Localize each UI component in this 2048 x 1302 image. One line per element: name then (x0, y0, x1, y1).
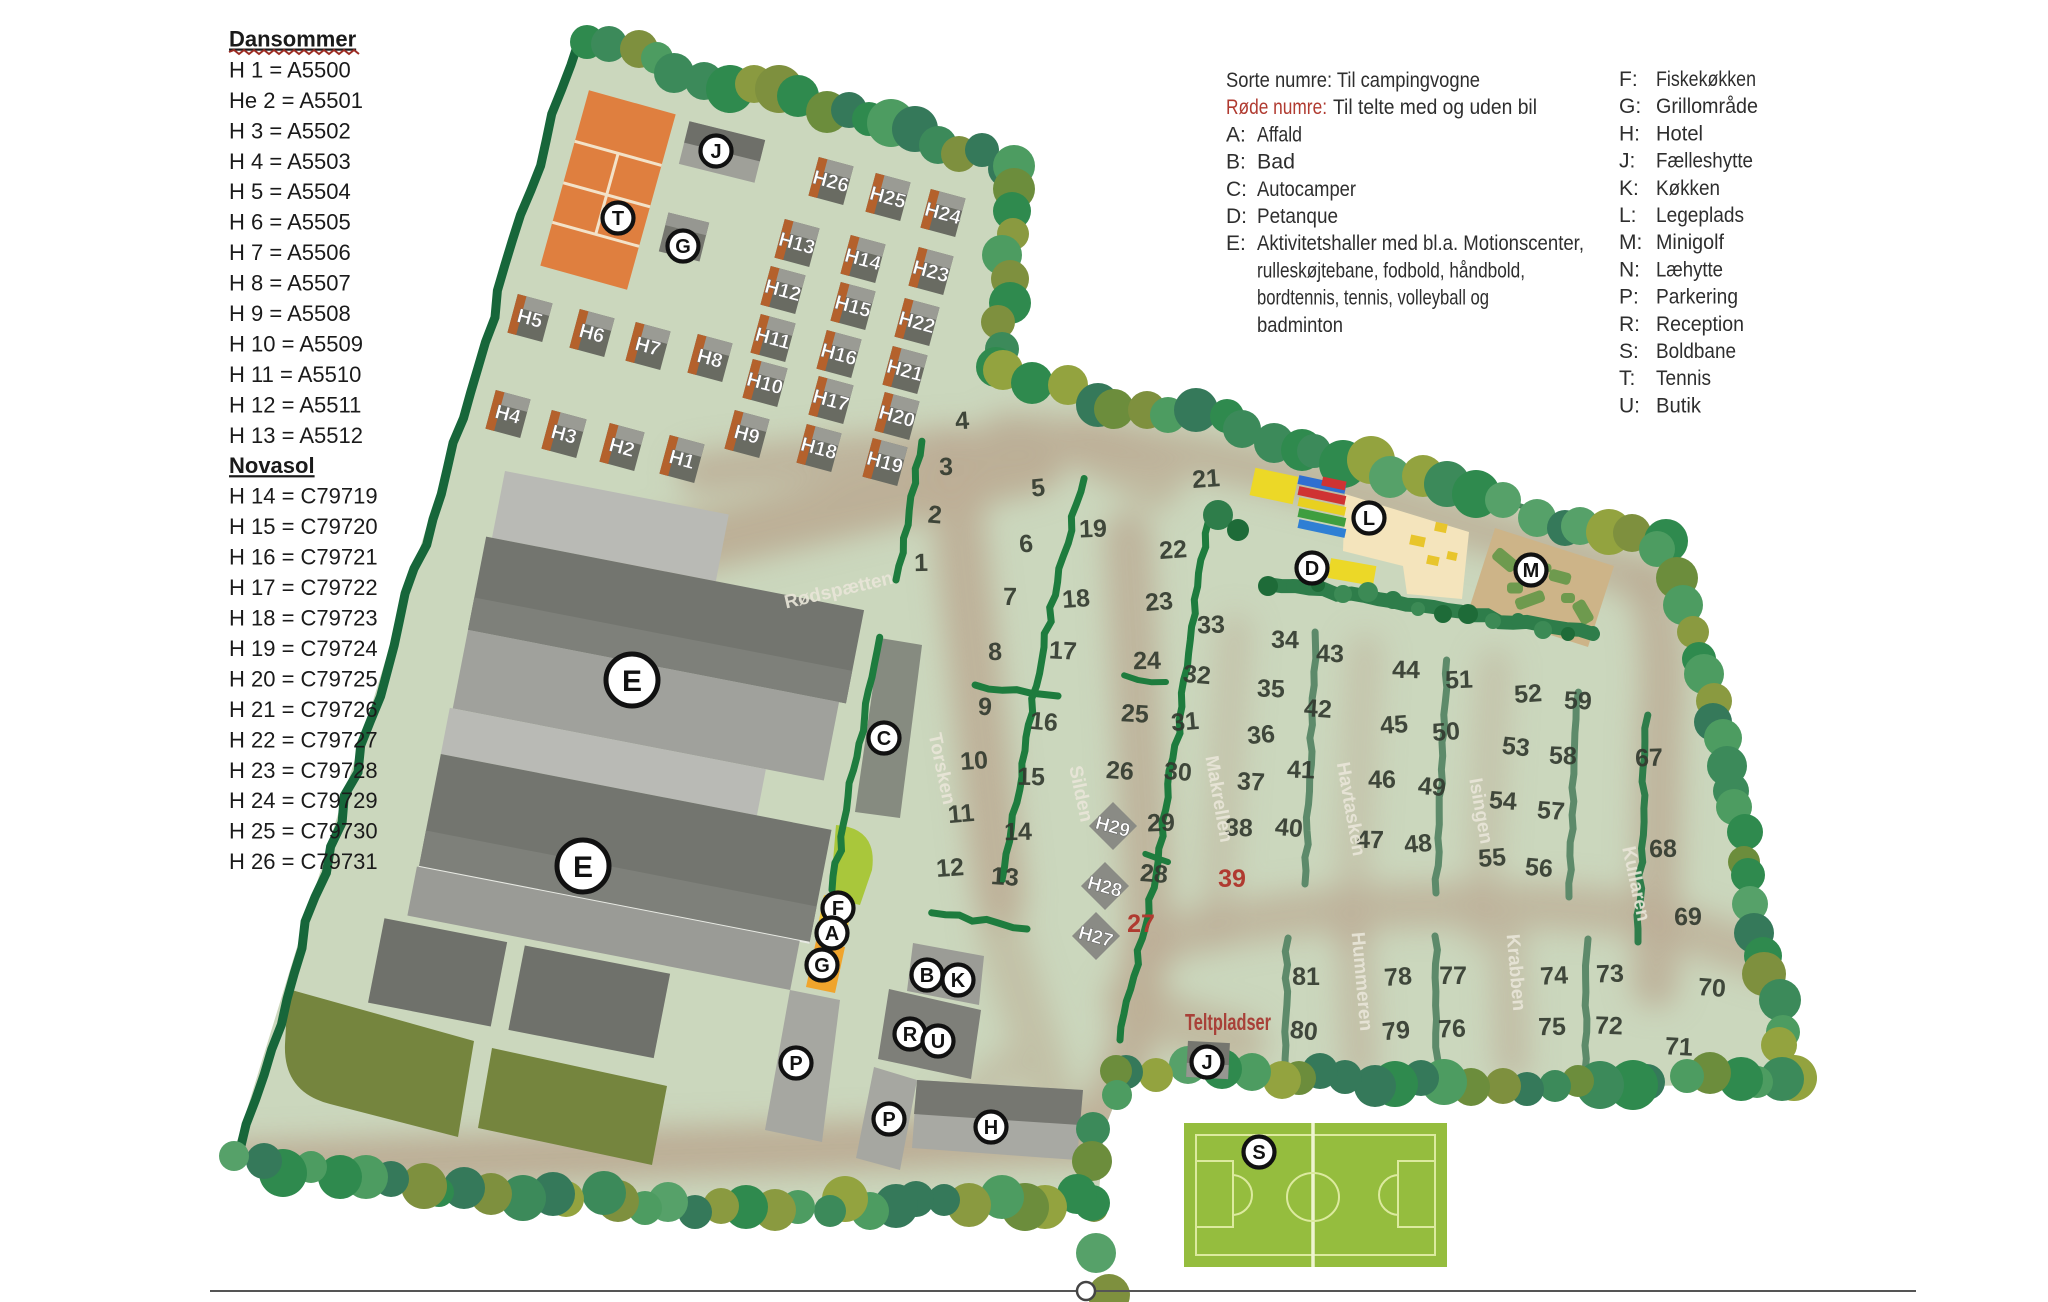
svg-text:P:: P: (1619, 286, 1639, 309)
svg-text:10: 10 (959, 746, 989, 776)
svg-text:H 17 = C79722: H 17 = C79722 (229, 575, 378, 600)
svg-text:R:: R: (1619, 313, 1640, 336)
svg-text:Legeplads: Legeplads (1656, 204, 1744, 227)
svg-text:G: G (814, 955, 830, 977)
svg-text:9: 9 (977, 693, 992, 722)
svg-text:B: B (920, 965, 934, 987)
svg-text:Minigolf: Minigolf (1656, 231, 1724, 254)
svg-text:D:: D: (1226, 205, 1247, 228)
svg-text:6: 6 (1018, 529, 1034, 558)
svg-text:F:: F: (1619, 68, 1638, 91)
svg-text:H 12 = A5511: H 12 = A5511 (229, 392, 361, 417)
svg-text:R: R (903, 1024, 918, 1046)
svg-text:71: 71 (1664, 1032, 1693, 1061)
svg-text:22: 22 (1158, 535, 1188, 565)
svg-text:Teltpladser: Teltpladser (1185, 1009, 1271, 1035)
svg-text:55: 55 (1477, 843, 1507, 873)
svg-text:5: 5 (1030, 473, 1046, 502)
svg-text:M:: M: (1619, 231, 1642, 254)
svg-text:H 13 = A5512: H 13 = A5512 (229, 423, 363, 448)
svg-text:H 23 = C79728: H 23 = C79728 (229, 758, 378, 783)
svg-text:31: 31 (1170, 707, 1200, 737)
svg-text:T: T (612, 208, 624, 230)
svg-text:Fiskekøkken: Fiskekøkken (1656, 68, 1756, 91)
svg-text:56: 56 (1524, 853, 1554, 883)
svg-text:T:: T: (1619, 367, 1635, 390)
svg-text:L: L (1363, 508, 1375, 530)
svg-text:Grillområde: Grillområde (1656, 95, 1758, 118)
svg-text:35: 35 (1257, 675, 1286, 704)
svg-text:24: 24 (1133, 647, 1161, 675)
svg-text:13: 13 (990, 862, 1020, 892)
svg-text:J: J (1201, 1052, 1212, 1074)
svg-text:H 1 = A5500: H 1 = A5500 (229, 57, 351, 82)
svg-text:36: 36 (1246, 720, 1276, 750)
svg-text:76: 76 (1438, 1015, 1467, 1044)
svg-text:P: P (789, 1053, 802, 1075)
svg-text:27: 27 (1127, 910, 1155, 938)
svg-text:H 15 = C79720: H 15 = C79720 (229, 514, 378, 539)
svg-text:Tennis: Tennis (1656, 367, 1711, 390)
svg-text:Køkken: Køkken (1656, 177, 1720, 200)
svg-text:14: 14 (1004, 818, 1032, 846)
svg-text:43: 43 (1316, 640, 1344, 668)
svg-text:L:: L: (1619, 204, 1637, 227)
svg-text:S: S (1252, 1142, 1265, 1164)
svg-text:72: 72 (1595, 1012, 1624, 1041)
svg-text:50: 50 (1431, 717, 1461, 747)
svg-text:33: 33 (1197, 611, 1226, 640)
svg-text:H: H (984, 1117, 998, 1139)
svg-text:45: 45 (1379, 710, 1409, 740)
svg-text:69: 69 (1674, 903, 1702, 931)
svg-text:A:: A: (1226, 123, 1246, 146)
svg-text:21: 21 (1191, 464, 1221, 494)
svg-text:H 3 = A5502: H 3 = A5502 (229, 118, 351, 143)
svg-text:H:: H: (1619, 122, 1640, 145)
svg-text:G:: G: (1619, 95, 1641, 118)
svg-text:73: 73 (1596, 960, 1625, 989)
svg-text:Parkering: Parkering (1656, 286, 1738, 309)
svg-text:12: 12 (935, 853, 965, 883)
svg-text:H 25 = C79730: H 25 = C79730 (229, 819, 378, 844)
svg-text:J: J (710, 141, 721, 163)
svg-text:A: A (825, 923, 839, 945)
svg-text:U: U (931, 1031, 945, 1053)
svg-text:Hotel: Hotel (1656, 122, 1703, 145)
svg-text:H 6 = A5505: H 6 = A5505 (229, 210, 351, 235)
svg-text:He 2 = A5501: He 2 = A5501 (229, 88, 363, 113)
svg-text:H 4 = A5503: H 4 = A5503 (229, 149, 351, 174)
svg-text:77: 77 (1439, 962, 1467, 990)
svg-text:1: 1 (914, 549, 928, 577)
svg-text:K: K (951, 970, 966, 992)
svg-text:D: D (1305, 558, 1319, 580)
svg-text:46: 46 (1368, 766, 1396, 794)
svg-text:Læhytte: Læhytte (1656, 258, 1723, 281)
svg-text:16: 16 (1029, 707, 1059, 737)
svg-text:H 22 = C79727: H 22 = C79727 (229, 727, 378, 752)
svg-text:E: E (622, 665, 642, 698)
svg-text:29: 29 (1147, 809, 1176, 838)
svg-text:Reception: Reception (1656, 313, 1744, 336)
svg-text:S:: S: (1619, 340, 1639, 363)
svg-text:32: 32 (1182, 660, 1212, 690)
svg-text:N:: N: (1619, 258, 1640, 281)
svg-text:49: 49 (1417, 772, 1447, 802)
svg-text:E:: E: (1226, 232, 1246, 255)
svg-text:53: 53 (1501, 732, 1532, 763)
svg-text:40: 40 (1274, 813, 1304, 843)
svg-text:80: 80 (1289, 1016, 1320, 1047)
svg-text:Til telte med og uden bil: Til telte med og uden bil (1333, 96, 1537, 119)
svg-text:Fælleshytte: Fælleshytte (1656, 150, 1753, 173)
svg-text:59: 59 (1564, 687, 1593, 716)
svg-text:H 14 = C79719: H 14 = C79719 (229, 484, 378, 509)
svg-text:Autocamper: Autocamper (1257, 178, 1356, 201)
svg-text:48: 48 (1403, 829, 1433, 859)
svg-text:H 10 = A5509: H 10 = A5509 (229, 331, 363, 356)
svg-text:B:: B: (1226, 151, 1246, 174)
svg-text:79: 79 (1381, 1016, 1412, 1047)
svg-text:54: 54 (1488, 786, 1518, 816)
svg-text:39: 39 (1218, 865, 1246, 893)
svg-text:7: 7 (1003, 583, 1017, 611)
svg-text:Dansommer: Dansommer (229, 27, 357, 52)
svg-text:Novasol: Novasol (229, 453, 315, 478)
svg-text:C: C (877, 728, 891, 750)
svg-text:E: E (573, 851, 593, 884)
svg-text:Butik: Butik (1656, 394, 1701, 417)
svg-text:25: 25 (1120, 699, 1149, 728)
svg-text:67: 67 (1635, 744, 1664, 773)
svg-text:Petanque: Petanque (1257, 205, 1338, 228)
svg-text:H 19 = C79724: H 19 = C79724 (229, 636, 378, 661)
svg-text:U:: U: (1619, 394, 1640, 417)
svg-text:51: 51 (1445, 666, 1474, 695)
svg-text:Sorte numre: Til campingvogne: Sorte numre: Til campingvogne (1226, 69, 1480, 92)
svg-text:Affald: Affald (1257, 123, 1302, 146)
svg-text:4: 4 (954, 407, 970, 436)
svg-text:81: 81 (1292, 963, 1320, 991)
svg-text:42: 42 (1303, 694, 1333, 724)
svg-text:57: 57 (1536, 796, 1566, 826)
svg-text:C:: C: (1226, 178, 1247, 201)
svg-text:badminton: badminton (1257, 314, 1343, 337)
svg-text:G: G (675, 236, 691, 258)
svg-text:68: 68 (1649, 835, 1677, 863)
svg-text:H 11 = A5510: H 11 = A5510 (229, 362, 361, 387)
svg-text:19: 19 (1079, 515, 1108, 544)
svg-text:H 20 = C79725: H 20 = C79725 (229, 666, 378, 691)
svg-text:H 5 = A5504: H 5 = A5504 (229, 179, 351, 204)
svg-text:28: 28 (1139, 859, 1169, 889)
svg-text:H 24 = C79729: H 24 = C79729 (229, 788, 378, 813)
svg-text:34: 34 (1271, 626, 1299, 654)
svg-text:Aktivitetshaller med bl.a. Mot: Aktivitetshaller med bl.a. Motionscenter… (1257, 232, 1584, 255)
svg-text:H 9 = A5508: H 9 = A5508 (229, 301, 351, 326)
svg-text:15: 15 (1017, 763, 1045, 791)
svg-text:H 18 = C79723: H 18 = C79723 (229, 606, 378, 631)
svg-text:70: 70 (1697, 973, 1727, 1003)
svg-text:41: 41 (1287, 756, 1316, 785)
svg-text:M: M (1523, 560, 1540, 582)
svg-text:2: 2 (927, 500, 943, 529)
svg-text:52: 52 (1513, 679, 1543, 709)
svg-text:23: 23 (1144, 587, 1174, 617)
svg-text:8: 8 (988, 638, 1003, 666)
svg-text:Bad: Bad (1257, 151, 1295, 174)
svg-text:44: 44 (1392, 656, 1420, 684)
svg-text:17: 17 (1048, 636, 1077, 665)
svg-text:3: 3 (939, 453, 953, 481)
svg-text:37: 37 (1236, 767, 1265, 796)
svg-text:H 21 = C79726: H 21 = C79726 (229, 697, 378, 722)
svg-text:rulleskøjtebane, fodbold, hånd: rulleskøjtebane, fodbold, håndbold, (1257, 259, 1525, 282)
svg-text:K:: K: (1619, 177, 1639, 200)
svg-text:bordtennis, tennis, volleyball: bordtennis, tennis, volleyball og (1257, 287, 1489, 310)
svg-text:30: 30 (1163, 757, 1193, 787)
svg-text:Røde numre:: Røde numre: (1226, 96, 1327, 119)
svg-text:H 16 = C79721: H 16 = C79721 (229, 545, 378, 570)
svg-text:58: 58 (1549, 742, 1578, 771)
svg-text:H 8 = A5507: H 8 = A5507 (229, 271, 351, 296)
svg-text:H 26 = C79731: H 26 = C79731 (229, 849, 378, 874)
svg-text:75: 75 (1538, 1013, 1566, 1041)
svg-text:J:: J: (1619, 150, 1635, 173)
svg-text:78: 78 (1383, 962, 1413, 992)
svg-text:P: P (882, 1109, 895, 1131)
svg-text:74: 74 (1539, 961, 1568, 990)
svg-text:18: 18 (1061, 584, 1091, 614)
svg-text:H 7 = A5506: H 7 = A5506 (229, 240, 351, 265)
svg-text:Boldbane: Boldbane (1656, 340, 1736, 363)
svg-text:26: 26 (1105, 756, 1135, 786)
